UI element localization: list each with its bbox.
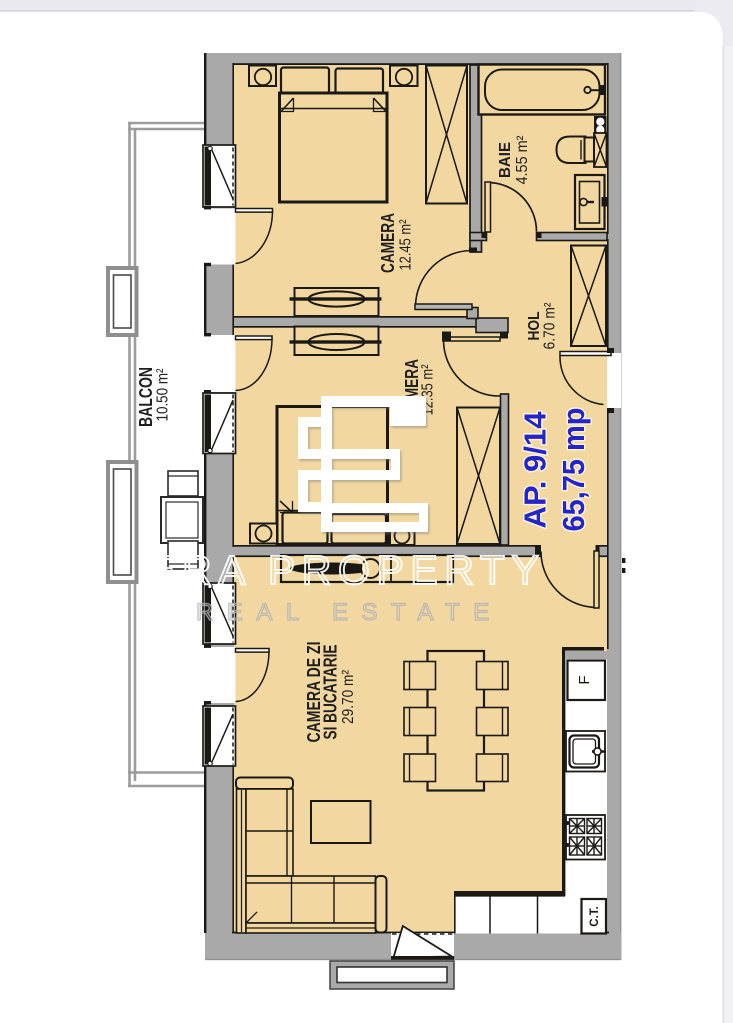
svg-text:REAL ESTATE: REAL ESTATE	[196, 599, 503, 626]
svg-text:SI BUCATARIE: SI BUCATARIE	[321, 645, 341, 740]
svg-text:F: F	[576, 675, 593, 684]
svg-text:4.55 m²: 4.55 m²	[514, 136, 531, 185]
svg-text:10.50 m²: 10.50 m²	[155, 368, 172, 422]
svg-text:12.45 m²: 12.45 m²	[398, 219, 415, 271]
svg-text:CAMERA: CAMERA	[378, 213, 398, 273]
svg-text:HOL: HOL	[526, 312, 543, 341]
svg-text:65,75 mp: 65,75 mp	[556, 408, 591, 532]
svg-text:AP. 9/14: AP. 9/14	[518, 411, 553, 529]
svg-text:BALCON: BALCON	[136, 367, 156, 427]
svg-text:6.70 m²: 6.70 m²	[542, 303, 559, 350]
svg-text:BAIE: BAIE	[497, 142, 514, 178]
svg-text:29.70 m²: 29.70 m²	[340, 669, 357, 724]
svg-text:ERA PROPERTY: ERA PROPERTY	[148, 547, 545, 593]
svg-text:C.T.: C.T.	[589, 906, 601, 926]
